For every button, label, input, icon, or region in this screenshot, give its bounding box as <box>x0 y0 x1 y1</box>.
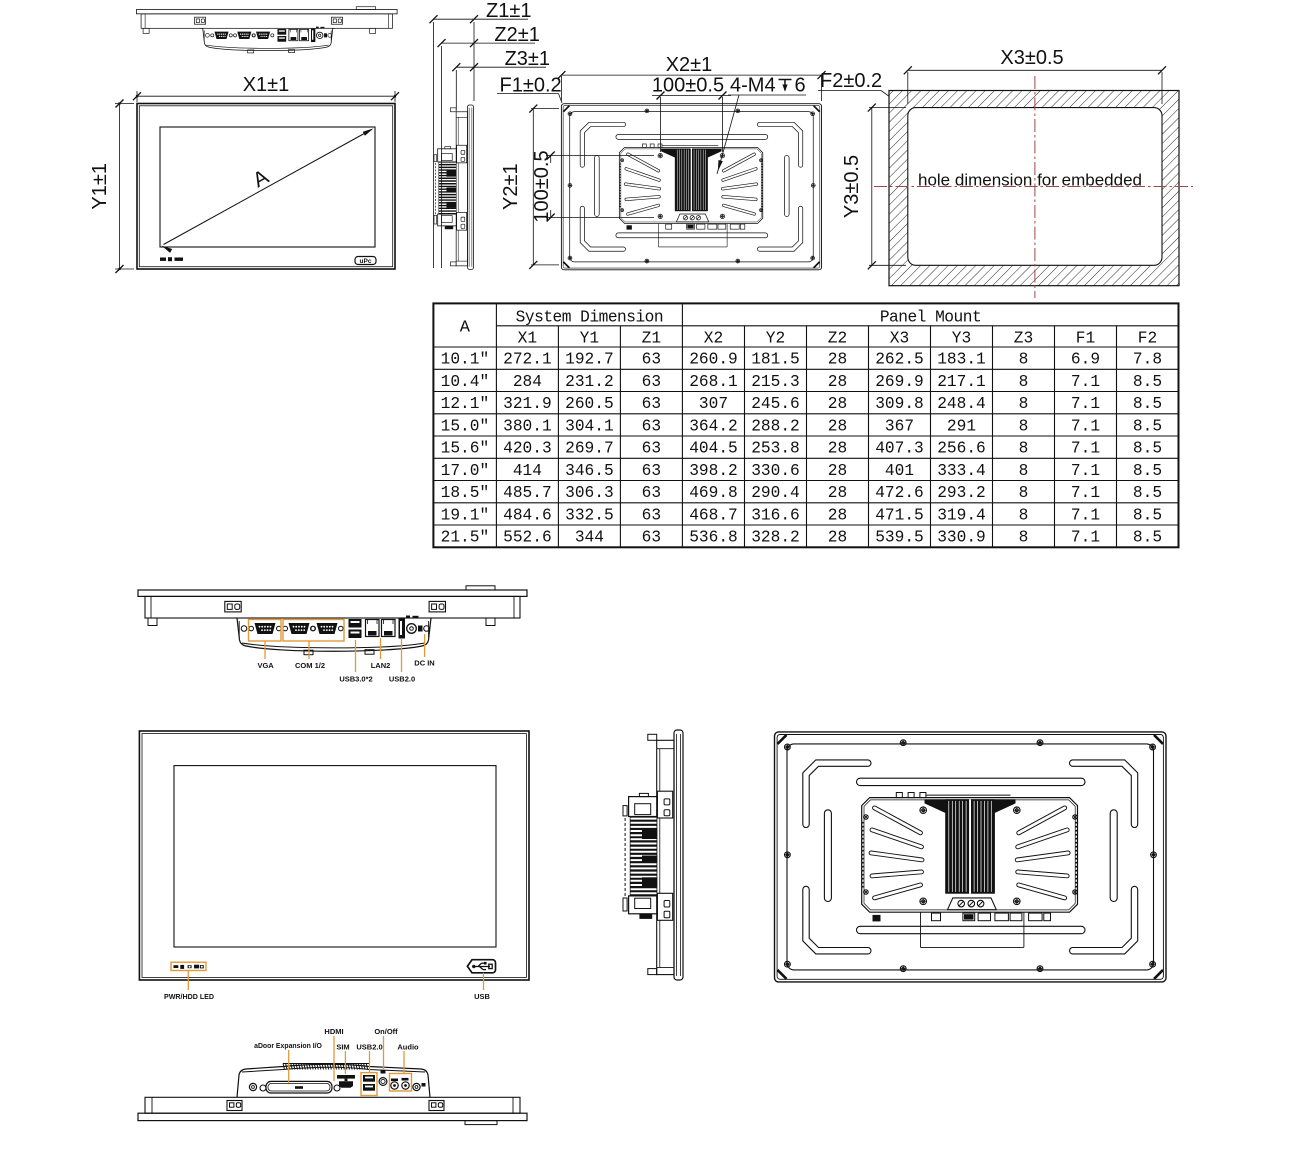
svg-text:COM 1/2: COM 1/2 <box>295 661 325 670</box>
svg-text:uPc: uPc <box>360 258 372 265</box>
svg-text:Z1: Z1 <box>642 329 661 347</box>
svg-text:LAN2: LAN2 <box>371 661 391 670</box>
svg-text:63: 63 <box>642 373 661 391</box>
svg-text:Z3±1: Z3±1 <box>505 48 550 70</box>
svg-text:Y1: Y1 <box>580 329 599 347</box>
svg-text:8.5: 8.5 <box>1133 462 1162 480</box>
svg-text:63: 63 <box>642 417 661 435</box>
svg-text:8: 8 <box>1019 395 1029 413</box>
svg-text:8: 8 <box>1019 351 1029 369</box>
svg-text:28: 28 <box>828 351 847 369</box>
svg-text:SIM: SIM <box>336 1043 349 1052</box>
svg-text:290.4: 290.4 <box>751 484 800 502</box>
svg-text:4-M4: 4-M4 <box>730 75 776 97</box>
svg-text:17.0": 17.0" <box>441 462 490 480</box>
svg-text:291: 291 <box>947 417 976 435</box>
svg-text:X1±1: X1±1 <box>243 74 290 96</box>
svg-text:X1: X1 <box>518 329 537 347</box>
svg-text:8: 8 <box>1019 529 1029 547</box>
svg-text:X3±0.5: X3±0.5 <box>1000 47 1063 69</box>
svg-text:407.3: 407.3 <box>875 440 924 458</box>
svg-text:181.5: 181.5 <box>751 351 800 369</box>
svg-text:63: 63 <box>642 506 661 524</box>
svg-text:10.4": 10.4" <box>441 373 490 391</box>
svg-text:28: 28 <box>828 440 847 458</box>
svg-text:401: 401 <box>885 462 914 480</box>
svg-text:63: 63 <box>642 462 661 480</box>
svg-text:63: 63 <box>642 529 661 547</box>
svg-text:100±0.5: 100±0.5 <box>652 75 724 97</box>
svg-text:8.5: 8.5 <box>1133 440 1162 458</box>
svg-text:398.2: 398.2 <box>689 462 738 480</box>
svg-text:7.1: 7.1 <box>1071 506 1100 524</box>
svg-text:330.9: 330.9 <box>937 529 986 547</box>
svg-text:63: 63 <box>642 351 661 369</box>
svg-text:7.1: 7.1 <box>1071 395 1100 413</box>
svg-text:8.5: 8.5 <box>1133 373 1162 391</box>
svg-text:293.2: 293.2 <box>937 484 986 502</box>
svg-text:231.2: 231.2 <box>565 373 614 391</box>
svg-text:321.9: 321.9 <box>503 395 552 413</box>
svg-text:269.9: 269.9 <box>875 373 924 391</box>
svg-text:272.1: 272.1 <box>503 351 552 369</box>
svg-text:10.1": 10.1" <box>441 351 490 369</box>
svg-text:215.3: 215.3 <box>751 373 800 391</box>
svg-text:8: 8 <box>1019 484 1029 502</box>
svg-text:260.9: 260.9 <box>689 351 738 369</box>
svg-text:Z1±1: Z1±1 <box>486 0 531 22</box>
svg-text:HDMI: HDMI <box>324 1027 343 1036</box>
svg-text:469.8: 469.8 <box>689 484 738 502</box>
svg-text:217.1: 217.1 <box>937 373 986 391</box>
svg-text:18.5": 18.5" <box>441 484 490 502</box>
svg-text:Y3±0.5: Y3±0.5 <box>841 155 863 218</box>
svg-text:Panel Mount: Panel Mount <box>880 308 981 326</box>
svg-text:485.7: 485.7 <box>503 484 552 502</box>
svg-text:aDoor Expansion I/O: aDoor Expansion I/O <box>254 1043 322 1050</box>
svg-text:F1±0.2: F1±0.2 <box>500 75 562 97</box>
svg-text:7.1: 7.1 <box>1071 484 1100 502</box>
svg-text:468.7: 468.7 <box>689 506 738 524</box>
svg-text:28: 28 <box>828 373 847 391</box>
svg-text:100±0.5: 100±0.5 <box>531 150 553 222</box>
svg-text:6.9: 6.9 <box>1071 351 1100 369</box>
svg-text:307: 307 <box>699 395 728 413</box>
svg-text:536.8: 536.8 <box>689 529 738 547</box>
svg-text:28: 28 <box>828 417 847 435</box>
svg-text:hole dimension for embedded: hole dimension for embedded <box>918 170 1142 189</box>
svg-text:On/Off: On/Off <box>374 1027 398 1036</box>
svg-text:63: 63 <box>642 395 661 413</box>
svg-text:344: 344 <box>575 529 604 547</box>
svg-text:248.4: 248.4 <box>937 395 986 413</box>
svg-text:Z3: Z3 <box>1014 329 1033 347</box>
svg-text:269.7: 269.7 <box>565 440 614 458</box>
svg-text:8: 8 <box>1019 440 1029 458</box>
svg-text:306.3: 306.3 <box>565 484 614 502</box>
svg-text:304.1: 304.1 <box>565 417 614 435</box>
svg-text:7.1: 7.1 <box>1071 462 1100 480</box>
svg-text:28: 28 <box>828 395 847 413</box>
svg-text:364.2: 364.2 <box>689 417 738 435</box>
svg-text:539.5: 539.5 <box>875 529 924 547</box>
svg-text:309.8: 309.8 <box>875 395 924 413</box>
svg-text:VGA: VGA <box>257 661 274 670</box>
svg-text:28: 28 <box>828 484 847 502</box>
svg-text:USB: USB <box>474 992 490 1001</box>
svg-text:15.0": 15.0" <box>441 417 490 435</box>
svg-text:8.5: 8.5 <box>1133 506 1162 524</box>
svg-text:7.1: 7.1 <box>1071 417 1100 435</box>
svg-text:330.6: 330.6 <box>751 462 800 480</box>
svg-text:F1: F1 <box>1076 329 1095 347</box>
svg-text:21.5": 21.5" <box>441 529 490 547</box>
svg-text:6: 6 <box>795 75 806 97</box>
svg-text:8: 8 <box>1019 462 1029 480</box>
svg-text:256.6: 256.6 <box>937 440 986 458</box>
svg-text:8.5: 8.5 <box>1133 529 1162 547</box>
svg-text:7.1: 7.1 <box>1071 440 1100 458</box>
svg-text:8: 8 <box>1019 373 1029 391</box>
svg-text:A: A <box>460 319 471 338</box>
svg-text:7.8: 7.8 <box>1133 351 1162 369</box>
svg-text:63: 63 <box>642 440 661 458</box>
svg-text:380.1: 380.1 <box>503 417 552 435</box>
svg-text:63: 63 <box>642 484 661 502</box>
svg-text:367: 367 <box>885 417 914 435</box>
svg-text:7.1: 7.1 <box>1071 373 1100 391</box>
svg-text:Y2: Y2 <box>766 329 785 347</box>
svg-text:346.5: 346.5 <box>565 462 614 480</box>
svg-text:332.5: 332.5 <box>565 506 614 524</box>
svg-text:192.7: 192.7 <box>565 351 614 369</box>
svg-text:Z2: Z2 <box>828 329 847 347</box>
svg-text:8: 8 <box>1019 417 1029 435</box>
svg-text:552.6: 552.6 <box>503 529 552 547</box>
svg-text:X3: X3 <box>890 329 909 347</box>
svg-text:183.1: 183.1 <box>937 351 986 369</box>
svg-text:USB2.0: USB2.0 <box>356 1043 382 1052</box>
svg-text:System Dimension: System Dimension <box>516 308 663 326</box>
svg-text:472.6: 472.6 <box>875 484 924 502</box>
svg-text:PWR/HDD LED: PWR/HDD LED <box>164 993 214 1001</box>
svg-text:471.5: 471.5 <box>875 506 924 524</box>
svg-text:8: 8 <box>1019 506 1029 524</box>
svg-text:Y3: Y3 <box>952 329 971 347</box>
svg-text:28: 28 <box>828 529 847 547</box>
svg-text:X2: X2 <box>704 329 723 347</box>
svg-text:15.6": 15.6" <box>441 440 490 458</box>
svg-text:260.5: 260.5 <box>565 395 614 413</box>
svg-text:414: 414 <box>513 462 542 480</box>
svg-text:7.1: 7.1 <box>1071 529 1100 547</box>
svg-text:284: 284 <box>513 373 542 391</box>
svg-text:288.2: 288.2 <box>751 417 800 435</box>
svg-text:245.6: 245.6 <box>751 395 800 413</box>
svg-text:12.1": 12.1" <box>441 395 490 413</box>
svg-text:8.5: 8.5 <box>1133 484 1162 502</box>
svg-text:333.4: 333.4 <box>937 462 986 480</box>
svg-text:F2±0.2: F2±0.2 <box>820 70 882 92</box>
svg-text:328.2: 328.2 <box>751 529 800 547</box>
svg-text:Z2±1: Z2±1 <box>494 24 539 46</box>
svg-text:Y2±1: Y2±1 <box>500 163 522 210</box>
svg-text:Y1±1: Y1±1 <box>89 163 111 210</box>
svg-text:USB2.0: USB2.0 <box>389 675 415 684</box>
svg-text:28: 28 <box>828 506 847 524</box>
svg-text:19.1": 19.1" <box>441 506 490 524</box>
svg-text:28: 28 <box>828 462 847 480</box>
svg-text:X2±1: X2±1 <box>666 54 713 76</box>
svg-text:F2: F2 <box>1138 329 1157 347</box>
svg-text:319.4: 319.4 <box>937 506 986 524</box>
svg-text:8.5: 8.5 <box>1133 395 1162 413</box>
svg-text:Audio: Audio <box>397 1043 419 1052</box>
svg-text:268.1: 268.1 <box>689 373 738 391</box>
svg-text:316.6: 316.6 <box>751 506 800 524</box>
svg-text:262.5: 262.5 <box>875 351 924 369</box>
svg-text:253.8: 253.8 <box>751 440 800 458</box>
svg-text:420.3: 420.3 <box>503 440 552 458</box>
svg-text:USB3.0*2: USB3.0*2 <box>339 675 372 684</box>
svg-text:DC IN: DC IN <box>414 659 434 668</box>
svg-text:8.5: 8.5 <box>1133 417 1162 435</box>
svg-text:484.6: 484.6 <box>503 506 552 524</box>
svg-text:404.5: 404.5 <box>689 440 738 458</box>
